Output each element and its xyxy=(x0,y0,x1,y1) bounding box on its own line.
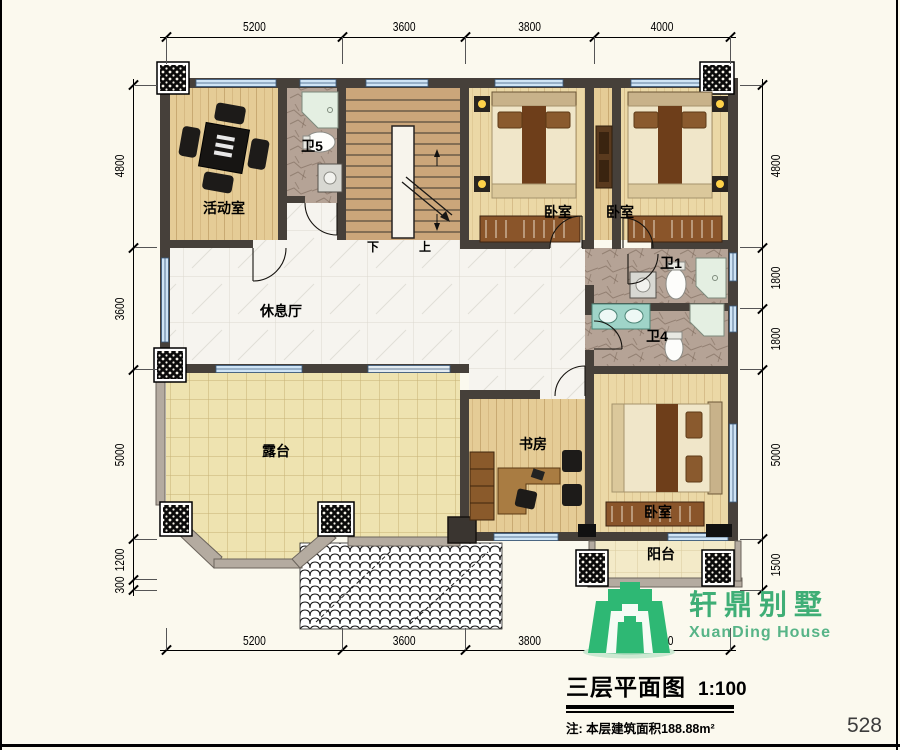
title-underline-thick xyxy=(566,705,734,709)
room-label-bedroom2: 卧室 xyxy=(606,204,634,220)
terrace-door xyxy=(368,366,450,373)
room-label-bedroom1: 卧室 xyxy=(544,204,572,220)
window-icon xyxy=(631,80,701,87)
bed-icon xyxy=(628,92,712,198)
column-icon xyxy=(578,524,596,537)
area-note: 注: 本层建筑面积188.88m² xyxy=(566,718,741,737)
window-icon xyxy=(494,534,558,541)
window-icon xyxy=(162,258,169,342)
column-icon xyxy=(448,517,476,543)
room-label-activity: 活动室 xyxy=(203,200,245,216)
window-icon xyxy=(196,80,276,87)
room-label-balcony: 阳台 xyxy=(647,546,675,562)
brand-name-en: XuanDing House xyxy=(689,624,831,642)
drawing-sheet: { "sheet": { "page_number": "528" }, "di… xyxy=(0,0,900,750)
stair-down-label: 下 xyxy=(367,240,379,254)
column-icon xyxy=(700,62,734,94)
window-icon xyxy=(730,424,737,502)
room-label-bath5: 卫5 xyxy=(301,138,323,154)
window-icon xyxy=(300,80,336,87)
chair-icon xyxy=(562,450,582,472)
title-block: 三层平面图 1:100 注: 本层建筑面积188.88m² xyxy=(566,668,741,737)
brand-logo: 轩鼎别墅 XuanDing House xyxy=(583,580,831,660)
window-icon xyxy=(730,253,737,281)
page-number: 528 xyxy=(847,714,882,738)
column-icon xyxy=(318,502,354,536)
chair-icon xyxy=(562,484,582,506)
room-label-bath4: 卫4 xyxy=(646,328,668,344)
toilet-icon xyxy=(666,269,686,299)
cabinet-icon xyxy=(596,126,612,188)
plan-scale: 1:100 xyxy=(698,679,747,701)
wardrobe-icon xyxy=(628,216,722,242)
floor-terrace xyxy=(166,373,460,562)
window-icon xyxy=(495,80,563,87)
sheet-border-bottom xyxy=(0,744,900,747)
brand-name-cn: 轩鼎别墅 xyxy=(689,590,831,621)
window-icon xyxy=(366,80,428,87)
floor-lounge xyxy=(170,240,585,364)
column-icon xyxy=(154,348,186,382)
column-icon xyxy=(160,502,192,536)
brand-house-icon xyxy=(583,580,683,660)
room-label-lounge: 休息厅 xyxy=(259,303,302,319)
room-label-study: 书房 xyxy=(519,436,547,452)
title-underline-thin xyxy=(566,711,734,713)
room-label-bath1: 卫1 xyxy=(660,255,682,271)
plan-title: 三层平面图 xyxy=(566,668,686,702)
stair-up-label: 上 xyxy=(419,239,431,254)
window-icon xyxy=(216,366,302,373)
bed-icon xyxy=(492,92,576,198)
roof-shingles xyxy=(300,543,502,629)
column-icon xyxy=(706,524,732,537)
room-label-terrace: 露台 xyxy=(262,443,290,459)
sheet-border-left xyxy=(0,0,2,750)
room-label-bedroom3: 卧室 xyxy=(644,504,672,520)
bed-icon xyxy=(612,402,722,494)
column-icon xyxy=(157,62,189,94)
sheet-border-right xyxy=(896,0,898,750)
window-icon xyxy=(730,306,737,332)
